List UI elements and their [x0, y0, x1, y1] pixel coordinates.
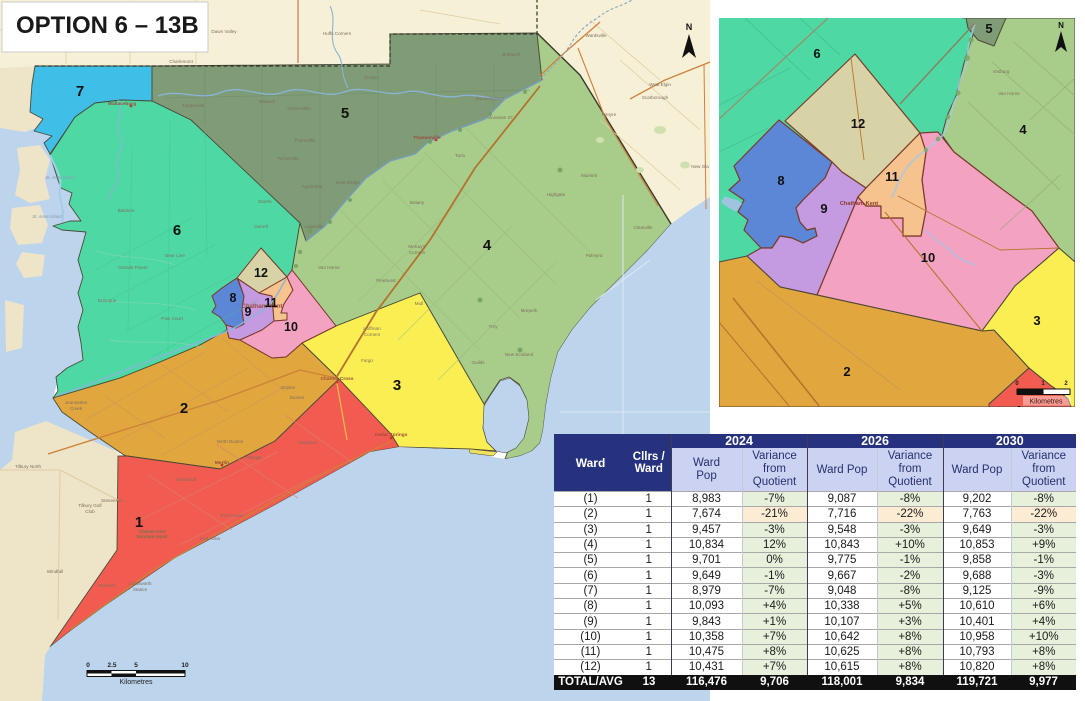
svg-text:5: 5	[134, 662, 138, 669]
svg-text:Port Crewe: Port Crewe	[221, 513, 244, 518]
svg-text:North Buxton: North Buxton	[217, 439, 244, 444]
svg-text:12: 12	[851, 116, 865, 131]
svg-text:Tupperville: Tupperville	[182, 103, 205, 108]
svg-text:Bothwell: Bothwell	[502, 52, 519, 57]
svg-text:Louisville: Louisville	[305, 224, 324, 229]
svg-text:5: 5	[985, 21, 992, 36]
svg-text:Green Mills: Green Mills	[287, 106, 311, 111]
svg-text:Vosburg: Vosburg	[993, 69, 1010, 74]
svg-text:McKay's: McKay's	[408, 244, 426, 249]
svg-text:Jeannettes: Jeannettes	[65, 400, 88, 405]
svg-text:Doyles: Doyles	[281, 385, 296, 390]
svg-text:12: 12	[254, 266, 268, 280]
svg-text:Coatsworth: Coatsworth	[128, 581, 152, 586]
svg-text:Corners: Corners	[409, 250, 426, 255]
svg-text:Morpeth: Morpeth	[521, 308, 538, 313]
svg-text:8: 8	[230, 291, 237, 305]
svg-text:New Scotland: New Scotland	[505, 352, 534, 357]
svg-text:6: 6	[813, 46, 820, 61]
svg-text:N: N	[1058, 21, 1064, 30]
svg-text:Kilometres: Kilometres	[1029, 399, 1063, 406]
svg-text:Charlemont: Charlemont	[169, 59, 193, 64]
svg-text:2: 2	[180, 400, 188, 417]
svg-text:Mull: Mull	[415, 301, 423, 306]
svg-text:Botany: Botany	[410, 200, 425, 205]
svg-text:5: 5	[341, 105, 349, 122]
svg-text:Eberts: Eberts	[258, 199, 272, 204]
svg-text:10: 10	[921, 250, 935, 265]
svg-text:Raleigh: Raleigh	[246, 455, 262, 460]
svg-text:Tilbury Golf: Tilbury Golf	[78, 503, 102, 508]
svg-text:2.5: 2.5	[107, 662, 116, 669]
svg-text:Municipal Airport: Municipal Airport	[137, 534, 169, 539]
svg-text:0: 0	[86, 662, 90, 669]
svg-text:Club: Club	[85, 509, 95, 514]
svg-text:7: 7	[76, 83, 84, 100]
svg-text:Grande Pointe: Grande Pointe	[118, 265, 148, 270]
svg-text:3: 3	[393, 377, 401, 394]
svg-text:10: 10	[284, 320, 298, 334]
svg-text:Buxton: Buxton	[290, 395, 305, 400]
svg-text:1: 1	[1015, 403, 1022, 418]
svg-text:2: 2	[843, 364, 850, 379]
svg-text:Moravian 37: Moravian 37	[487, 115, 513, 120]
svg-text:Moraviantown: Moraviantown	[476, 96, 505, 101]
svg-text:4: 4	[483, 237, 492, 254]
svg-text:Kilometres: Kilometres	[119, 679, 153, 686]
svg-text:N: N	[686, 22, 693, 32]
svg-text:Highgate: Highgate	[547, 192, 566, 197]
svg-text:Stevenson: Stevenson	[101, 498, 123, 503]
svg-text:6: 6	[173, 222, 181, 239]
svg-text:Station: Station	[133, 587, 148, 592]
svg-text:Darrell: Darrell	[254, 224, 268, 229]
svg-text:Fargo: Fargo	[361, 358, 373, 363]
svg-text:Renwick: Renwick	[98, 583, 116, 588]
svg-text:Baldoon: Baldoon	[118, 208, 135, 213]
svg-text:Troy: Troy	[488, 324, 498, 329]
svg-text:Creek: Creek	[70, 406, 83, 411]
svg-text:Chatham-Kent: Chatham-Kent	[840, 201, 878, 207]
svg-text:Bear Line: Bear Line	[165, 253, 185, 258]
svg-text:Glenwood: Glenwood	[176, 477, 197, 482]
svg-text:Kintyre: Kintyre	[602, 112, 617, 117]
svg-text:Corners: Corners	[364, 332, 381, 337]
svg-text:8: 8	[777, 173, 784, 188]
svg-text:Huffs Corners: Huffs Corners	[323, 31, 352, 36]
svg-text:Dawn Valley: Dawn Valley	[211, 29, 237, 34]
svg-text:Pain Court: Pain Court	[161, 316, 183, 321]
svg-text:Tilbury North: Tilbury North	[15, 464, 42, 469]
svg-text:St. Anne Island: St. Anne Island	[45, 175, 75, 180]
svg-text:Scarborough: Scarborough	[642, 95, 669, 100]
svg-text:Thorncliffe: Thorncliffe	[294, 138, 316, 143]
svg-text:4: 4	[1019, 122, 1027, 137]
svg-text:St. Anne Island: St. Anne Island	[32, 214, 62, 219]
svg-text:Sandison: Sandison	[298, 440, 318, 445]
svg-text:Palmyra: Palmyra	[586, 253, 603, 258]
svg-text:Wabash: Wabash	[259, 99, 276, 104]
svg-text:11: 11	[885, 169, 899, 184]
svg-text:Wardsville: Wardsville	[585, 33, 606, 38]
svg-text:Appledore: Appledore	[302, 184, 323, 189]
svg-text:Van Horne: Van Horne	[318, 265, 340, 270]
svg-text:1: 1	[135, 514, 143, 531]
svg-text:Pinehurst: Pinehurst	[376, 278, 396, 283]
svg-text:Guilds: Guilds	[471, 360, 485, 365]
svg-text:Hoffman: Hoffman	[363, 326, 381, 331]
svg-text:Turin: Turin	[455, 153, 466, 158]
svg-text:Kent Bridge: Kent Bridge	[336, 180, 360, 185]
svg-text:Dubuque: Dubuque	[98, 298, 117, 303]
svg-text:11: 11	[264, 296, 277, 310]
svg-text:Croton: Croton	[364, 75, 378, 80]
svg-text:Van Horne: Van Horne	[998, 91, 1020, 96]
svg-text:9: 9	[245, 305, 252, 319]
svg-text:3: 3	[1033, 313, 1040, 328]
svg-text:Clearville: Clearville	[634, 225, 653, 230]
svg-text:Port Alma: Port Alma	[200, 536, 220, 541]
svg-text:Turnerville: Turnerville	[277, 156, 299, 161]
svg-text:Windfall: Windfall	[47, 569, 63, 574]
svg-text:West Elgin: West Elgin	[649, 82, 671, 87]
svg-text:9: 9	[820, 201, 827, 216]
svg-text:New Gla: New Gla	[691, 164, 709, 169]
svg-text:10: 10	[181, 662, 189, 669]
svg-text:OPTION 6 – 13B: OPTION 6 – 13B	[16, 12, 199, 39]
svg-text:Muirkirk: Muirkirk	[581, 173, 598, 178]
